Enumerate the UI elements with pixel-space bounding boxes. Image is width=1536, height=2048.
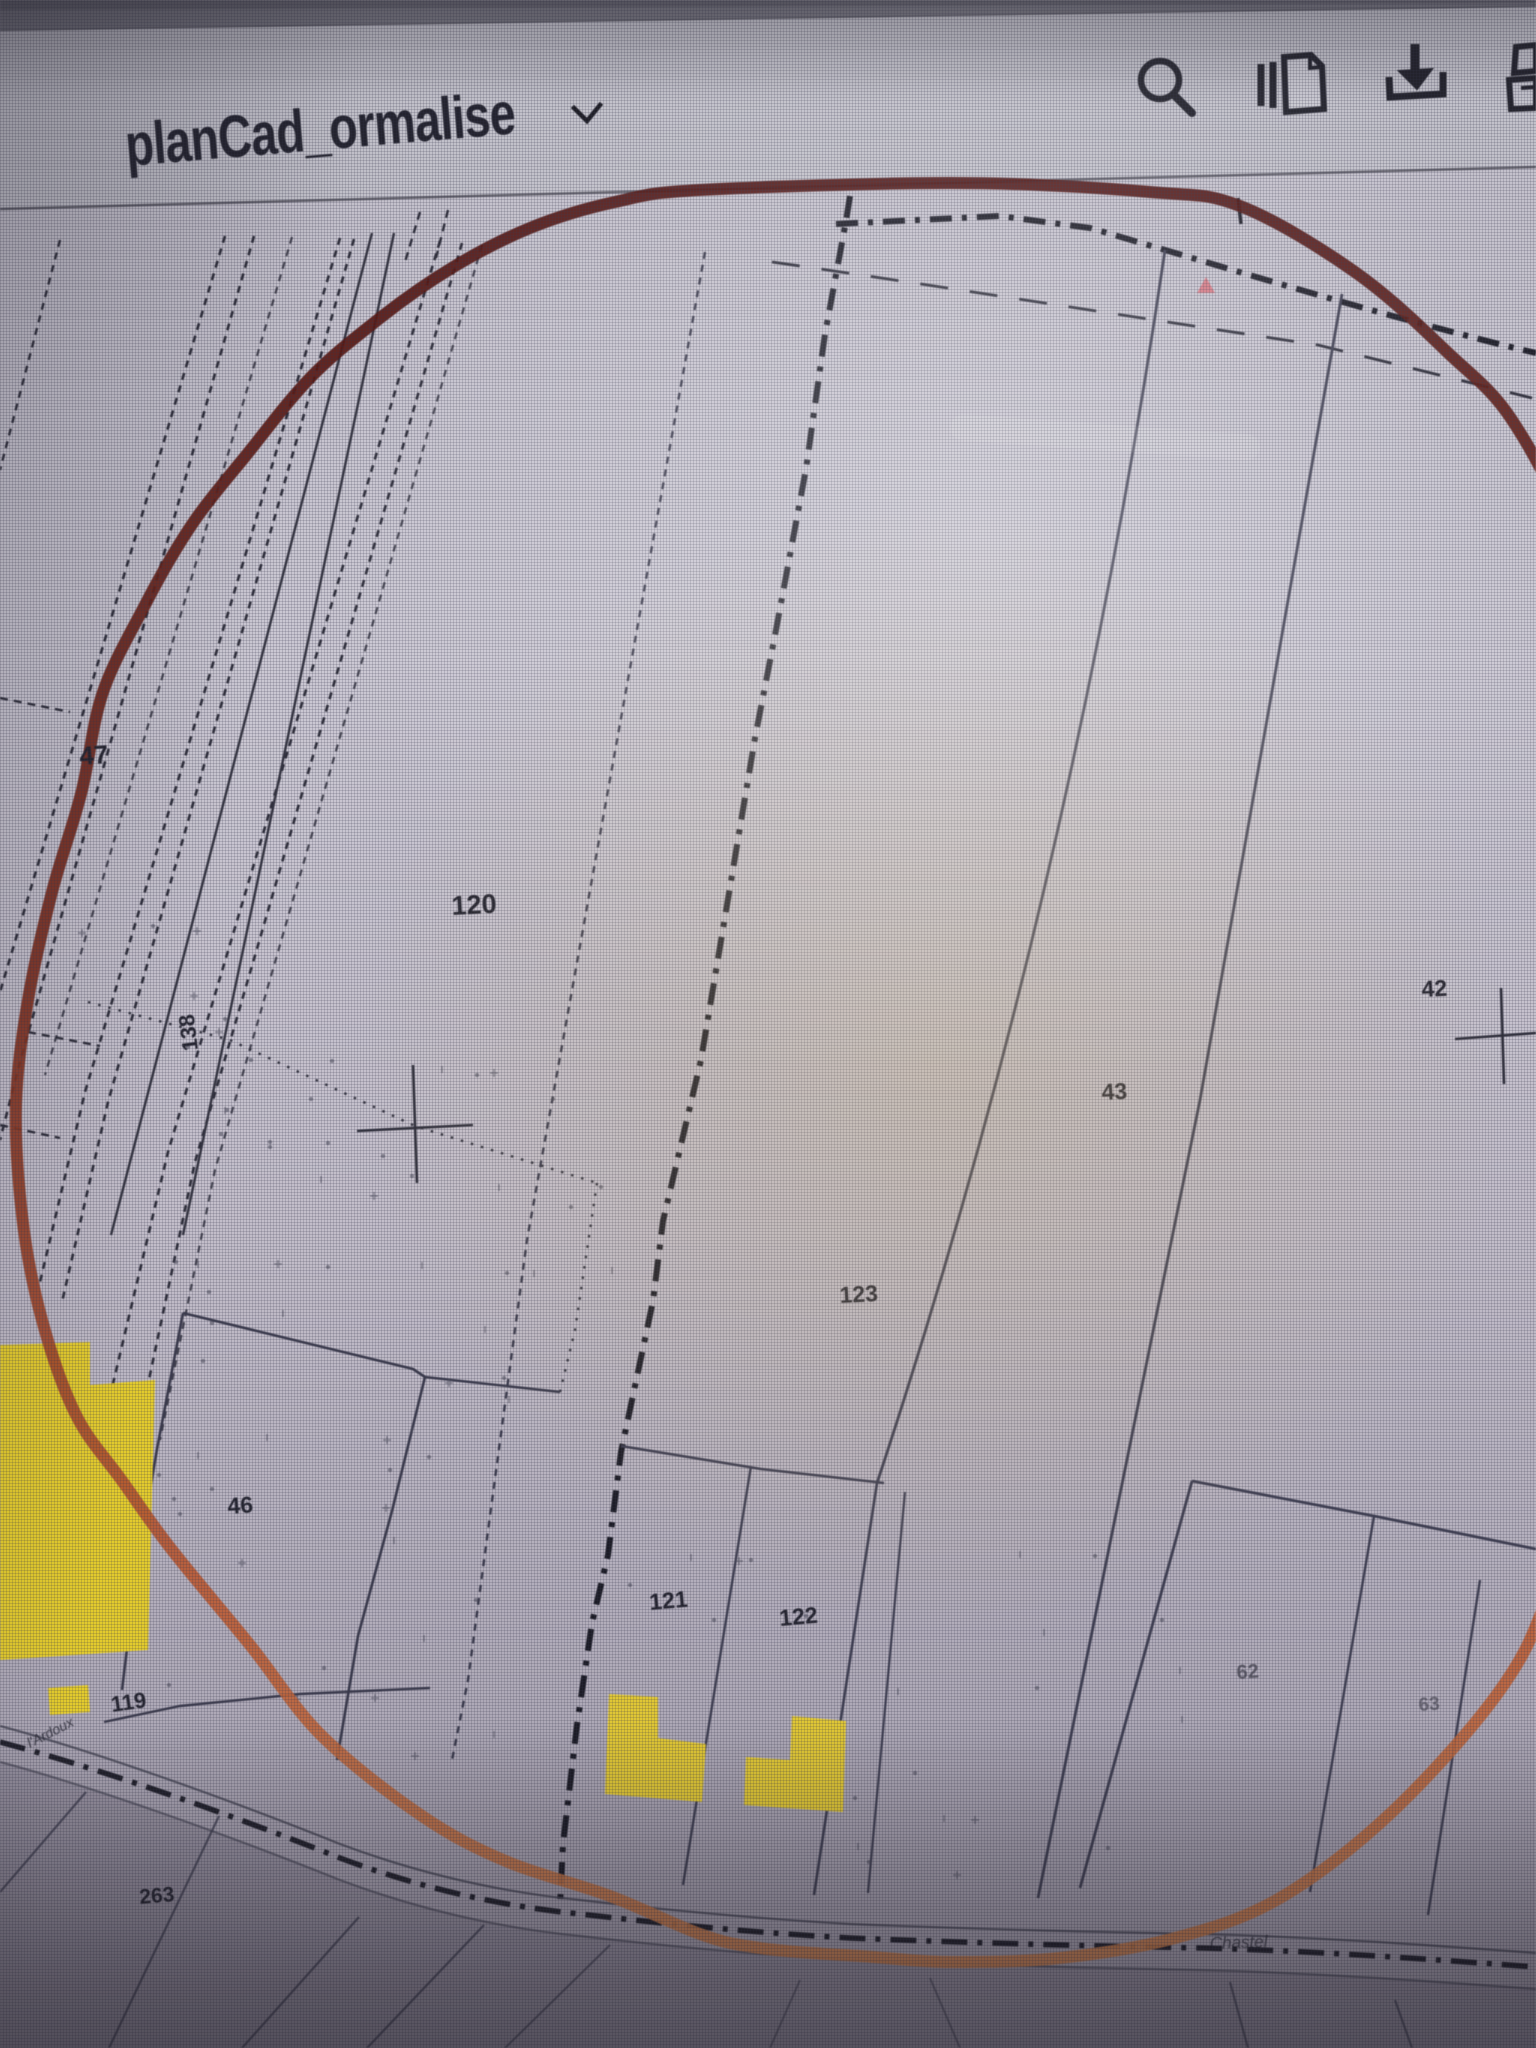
svg-text:46: 46 xyxy=(227,1491,254,1519)
svg-text:63: 63 xyxy=(1418,1694,1441,1716)
svg-text:Chastel: Chastel xyxy=(1209,1932,1268,1953)
svg-text:42: 42 xyxy=(1421,975,1448,1002)
svg-text:121: 121 xyxy=(648,1586,689,1615)
svg-text:119: 119 xyxy=(109,1687,148,1717)
svg-text:43: 43 xyxy=(1101,1078,1128,1105)
svg-text:47: 47 xyxy=(78,739,109,771)
svg-text:62: 62 xyxy=(1236,1660,1260,1683)
svg-text:263: 263 xyxy=(138,1883,175,1909)
svg-text:120: 120 xyxy=(451,889,498,921)
svg-text:123: 123 xyxy=(839,1280,879,1308)
svg-text:122: 122 xyxy=(778,1602,818,1631)
svg-text:138: 138 xyxy=(174,1013,203,1052)
